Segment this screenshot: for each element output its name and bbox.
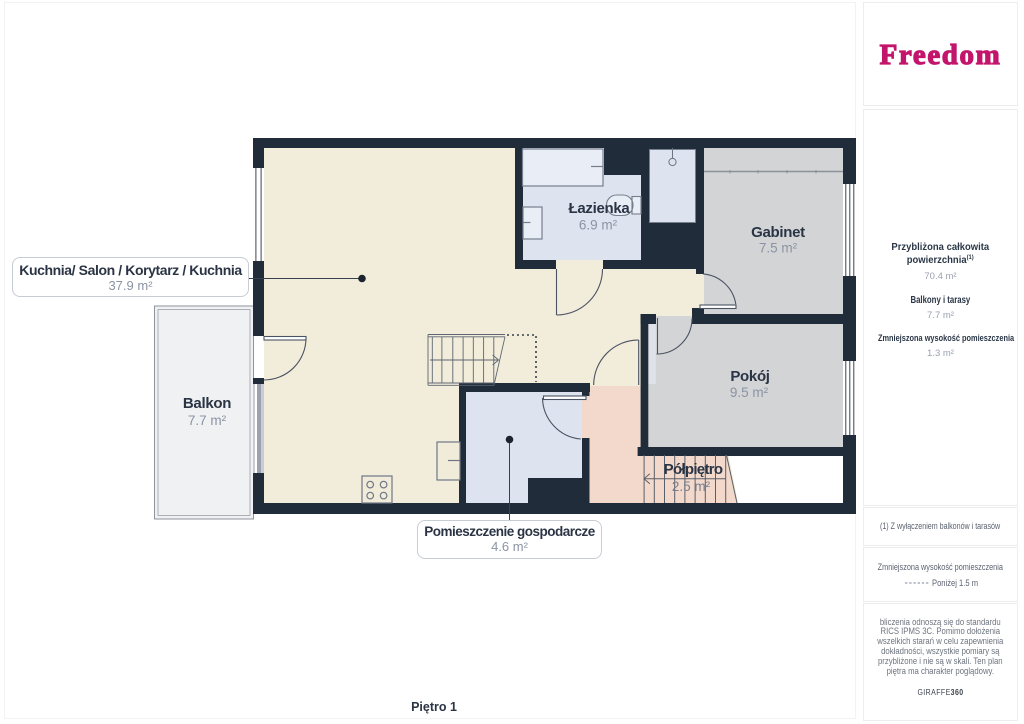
svg-text:Półpiętro: Półpiętro — [664, 461, 723, 478]
svg-text:7.7 m²: 7.7 m² — [188, 413, 227, 428]
svg-text:Gabinet: Gabinet — [751, 224, 805, 241]
svg-text:Łazienka: Łazienka — [569, 200, 631, 217]
svg-text:Pokój: Pokój — [730, 368, 769, 385]
svg-text:Balkon: Balkon — [183, 395, 231, 412]
svg-text:7.5 m²: 7.5 m² — [759, 241, 798, 256]
svg-text:6.9 m²: 6.9 m² — [579, 218, 618, 233]
svg-text:9.5 m²: 9.5 m² — [730, 385, 769, 400]
svg-text:2.5 m²: 2.5 m² — [672, 479, 711, 494]
